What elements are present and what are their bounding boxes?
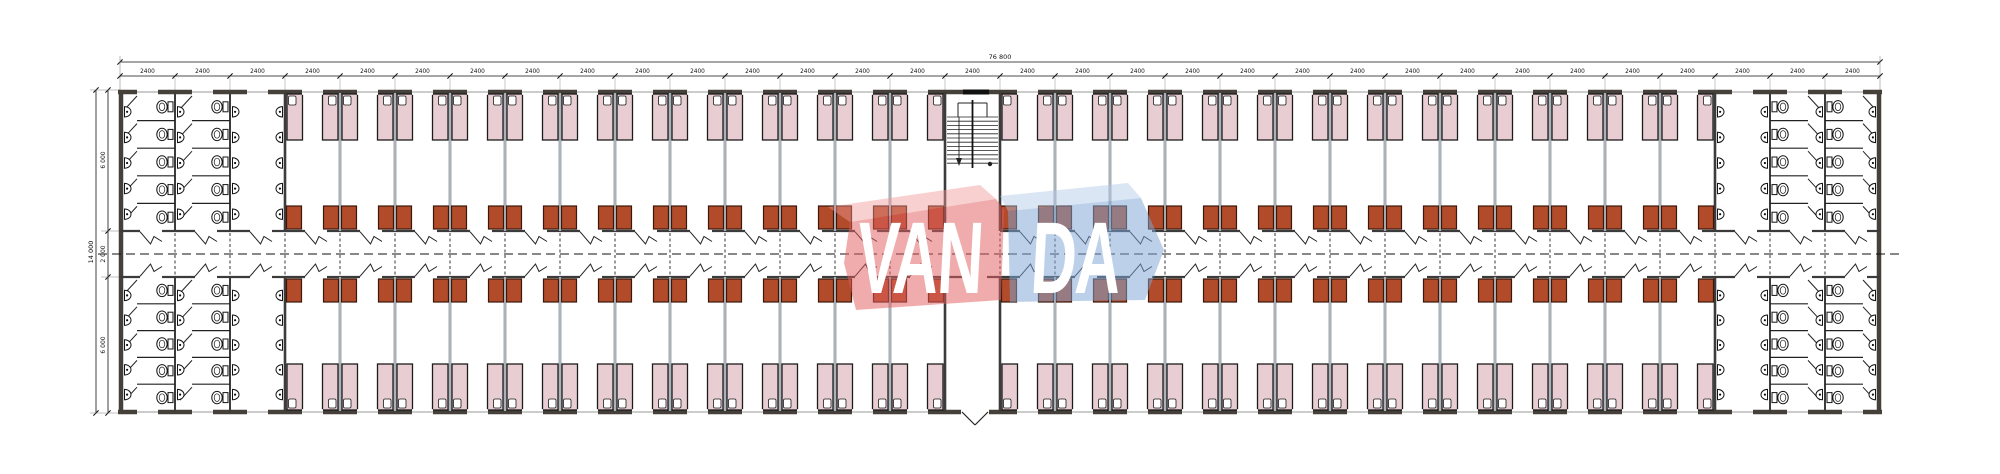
bathroom-left (125, 96, 283, 404)
svg-text:76 800: 76 800 (989, 53, 1012, 61)
staircase (947, 90, 998, 169)
svg-text:2400: 2400 (745, 69, 760, 75)
room-bottom (1332, 279, 1384, 410)
room-top (837, 94, 889, 229)
svg-text:2400: 2400 (1075, 69, 1090, 75)
room-top (452, 94, 504, 229)
svg-text:2400: 2400 (1020, 69, 1035, 75)
room-bottom (892, 279, 944, 410)
svg-text:2400: 2400 (470, 69, 485, 75)
room-top (1002, 94, 1054, 229)
room-top (397, 94, 449, 229)
floor-plan-canvas: 76 8002400240024002400240024002400240024… (0, 0, 2000, 474)
svg-text:2400: 2400 (1680, 69, 1695, 75)
floor-plan-drawing: 76 8002400240024002400240024002400240024… (0, 0, 2000, 474)
room-bottom (1222, 279, 1274, 410)
svg-text:2400: 2400 (1460, 69, 1475, 75)
room-bottom (1607, 279, 1659, 410)
room-top (562, 94, 614, 229)
room-bottom (1057, 279, 1109, 410)
svg-text:2400: 2400 (250, 69, 265, 75)
svg-text:2400: 2400 (1350, 69, 1365, 75)
room-bottom (287, 279, 339, 410)
room-top (1167, 94, 1219, 229)
room-top (1277, 94, 1329, 229)
room-bottom (1552, 279, 1604, 410)
room-bottom (1387, 279, 1439, 410)
svg-text:2400: 2400 (1845, 69, 1860, 75)
room-bottom (672, 279, 724, 410)
room-bottom (1497, 279, 1549, 410)
room-bottom (397, 279, 449, 410)
svg-text:2400: 2400 (1130, 69, 1145, 75)
svg-text:2400: 2400 (1625, 69, 1640, 75)
room-bottom (1442, 279, 1494, 410)
room-top (1497, 94, 1549, 229)
svg-text:2400: 2400 (635, 69, 650, 75)
room-bottom (617, 279, 669, 410)
room-top (507, 94, 559, 229)
room-top (1057, 94, 1109, 229)
room-top (782, 94, 834, 229)
room-top (1442, 94, 1494, 229)
room-bottom (837, 279, 889, 410)
svg-text:2400: 2400 (1790, 69, 1805, 75)
svg-text:2400: 2400 (965, 69, 980, 75)
room-bottom (342, 279, 394, 410)
room-bottom (727, 279, 779, 410)
svg-text:2400: 2400 (305, 69, 320, 75)
svg-text:2400: 2400 (1515, 69, 1530, 75)
svg-text:2400: 2400 (1570, 69, 1585, 75)
room-top (342, 94, 394, 229)
svg-text:2400: 2400 (140, 69, 155, 75)
room-top (1607, 94, 1659, 229)
entrance-door (961, 409, 989, 425)
svg-text:2400: 2400 (1185, 69, 1200, 75)
room-bottom (562, 279, 614, 410)
svg-text:2400: 2400 (690, 69, 705, 75)
svg-text:14 000: 14 000 (87, 241, 95, 264)
svg-text:6 000: 6 000 (100, 336, 107, 353)
svg-text:2400: 2400 (800, 69, 815, 75)
svg-text:2400: 2400 (415, 69, 430, 75)
room-bottom (1167, 279, 1219, 410)
svg-text:2400: 2400 (195, 69, 210, 75)
room-top (1112, 94, 1164, 229)
room-bottom (1002, 279, 1054, 410)
svg-text:2400: 2400 (580, 69, 595, 75)
room-bottom (1277, 279, 1329, 410)
room-top (1222, 94, 1274, 229)
svg-text:2400: 2400 (1295, 69, 1310, 75)
room-bottom (1662, 279, 1714, 410)
svg-text:2400: 2400 (1240, 69, 1255, 75)
room-bottom (507, 279, 559, 410)
bathroom-right (1718, 96, 1876, 404)
room-top (1387, 94, 1439, 229)
room-top (1552, 94, 1604, 229)
svg-text:2400: 2400 (855, 69, 870, 75)
svg-text:2400: 2400 (1405, 69, 1420, 75)
svg-text:2400: 2400 (1735, 69, 1750, 75)
room-top (892, 94, 944, 229)
svg-text:2400: 2400 (525, 69, 540, 75)
svg-text:6 000: 6 000 (100, 151, 107, 168)
room-top (1332, 94, 1384, 229)
room-top (1662, 94, 1714, 229)
room-bottom (452, 279, 504, 410)
room-bottom (782, 279, 834, 410)
svg-text:2400: 2400 (360, 69, 375, 75)
svg-text:2400: 2400 (910, 69, 925, 75)
room-top (287, 94, 339, 229)
room-top (672, 94, 724, 229)
room-top (727, 94, 779, 229)
room-top (617, 94, 669, 229)
room-bottom (1112, 279, 1164, 410)
